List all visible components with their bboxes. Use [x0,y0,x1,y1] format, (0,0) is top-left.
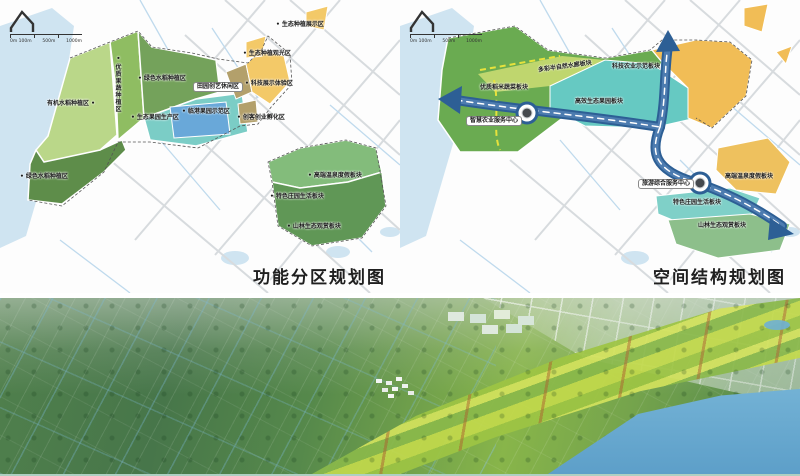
scale-end: 1000m [66,39,82,44]
scale-end: 1000m [466,39,482,44]
zone-label-tech-display-experience: • 科技展示体验区 [245,81,293,87]
block-label-tech-agri-demo: 科技农业示范板块 [612,64,660,70]
left-map-caption: 功能分区规划图 [253,263,386,288]
zone-label-maker-incubation: • 创客创业孵化区 [237,115,285,121]
block-label-quality-rice-veg: 优质稻米蔬菜板块 [480,85,528,91]
block-label-resort: 高端温泉度假板块 [725,174,773,180]
maps-row: 0m 100m 500m 1000m • 生态种植展示区 • 生态种植观光区 •… [0,0,800,293]
block-label-forest-eco: 山林生态观赏板块 [698,223,746,229]
scale-rule [10,34,82,38]
planning-document-page: 0m 100m 500m 1000m • 生态种植展示区 • 生态种植观光区 •… [0,0,800,476]
zone-label-manor-life-block: • 特色庄园生活板块 [270,194,324,200]
zone-label-lingang-orchard-demo: • 临港果园示范区 [182,109,230,115]
zone-label-organic-rice: 有机水稻种植区 • [47,101,95,107]
aerial-buildings [376,379,382,383]
zone-label-green-rice-south: • 绿色水稻种植区 [20,174,68,180]
zone-label-eco-planting-display: • 生态种植展示区 [276,22,324,28]
zone-label-pastoral-creative-leisure: 田园创艺休闲区 [193,82,243,92]
scale-zero: 0m 100m [410,39,432,44]
scale-bar: 0m 100m 500m 1000m [10,34,82,44]
scale-rule [410,34,482,38]
zone-label-eco-planting-sightseeing: • 生态种植观光区 [243,51,291,57]
block-label-manor-life: 特色庄园生活板块 [673,200,721,206]
zone-label-quality-produce: • 优质果蔬种植区 [114,56,120,113]
right-map-caption: 空间结构规划图 [653,263,786,288]
node-label-smart-agri-service-center: 智慧农业服务中心 [466,116,522,126]
block-label-efficient-eco-orchard: 高效生态果园板块 [575,99,623,105]
spatial-structure-map: 0m 100m 500m 1000m 科技农业示范板块 多彩半自然水廊板块 优质… [400,0,800,293]
aerial-greenhouses [448,312,464,321]
scale-mid: 500m [42,39,55,44]
zone-label-eco-orchard-production: • 生态果园生产区 [131,115,179,121]
aerial-lake [764,320,790,330]
zone-label-forest-eco-block: • 山林生态观赏板块 [287,224,341,230]
scale-mid: 500m [442,39,455,44]
scale-bar: 0m 100m 500m 1000m [410,34,482,44]
zone-label-resort-block: • 高端温泉度假板块 [308,173,362,179]
node-label-tourism-service-center: 旅游综合服务中心 [638,179,694,189]
scale-zero: 0m 100m [10,39,32,44]
zone-label-green-rice-north: • 绿色水稻种植区 [138,76,186,82]
functional-zoning-map: 0m 100m 500m 1000m • 生态种植展示区 • 生态种植观光区 •… [0,0,400,293]
aerial-render [0,298,800,476]
